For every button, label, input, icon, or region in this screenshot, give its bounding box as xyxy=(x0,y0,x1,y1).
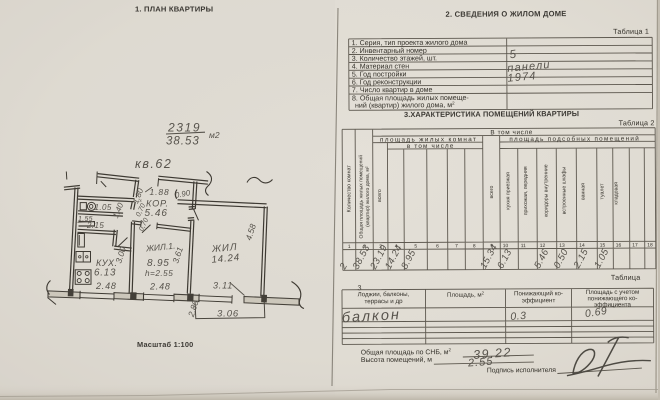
svg-text:8.95: 8.95 xyxy=(147,258,170,269)
svg-text:террасы и др: террасы и др xyxy=(364,298,403,305)
svg-text:16: 16 xyxy=(616,243,622,249)
svg-text:Общая площадь жилых помещений: Общая площадь жилых помещений xyxy=(357,155,364,239)
svg-text:3.11: 3.11 xyxy=(213,281,233,291)
svg-text:2. СВЕДЕНИЯ О ЖИЛОМ ДОМЕ: 2. СВЕДЕНИЯ О ЖИЛОМ ДОМЕ xyxy=(446,9,567,19)
svg-text:2.48: 2.48 xyxy=(149,282,171,292)
svg-text:(квартир) жилого дома, м²: (квартир) жилого дома, м² xyxy=(365,166,371,227)
svg-text:2.48: 2.48 xyxy=(95,281,117,291)
svg-text:кухня приезжая: кухня приезжая xyxy=(505,172,511,210)
svg-text:кв.62: кв.62 xyxy=(135,157,172,171)
svg-text:балкон: балкон xyxy=(341,307,401,326)
svg-text:Высота помещений, м: Высота помещений, м xyxy=(361,356,433,364)
svg-text:эффициент: эффициент xyxy=(522,297,556,304)
svg-text:6.13: 6.13 xyxy=(94,268,116,279)
svg-text:0.3: 0.3 xyxy=(510,310,527,323)
svg-text:прихожая, передняя: прихожая, передняя xyxy=(523,166,529,215)
svg-text:Общая площадь по СНБ, м2: Общая площадь по СНБ, м2 xyxy=(361,347,452,356)
svg-text:2.15: 2.15 xyxy=(86,221,104,230)
svg-text:18: 18 xyxy=(647,242,653,248)
svg-text:Площадь, м2: Площадь, м2 xyxy=(447,290,485,298)
svg-text:1. ПЛАН КВАРТИРЫ: 1. ПЛАН КВАРТИРЫ xyxy=(135,5,213,14)
svg-text:м2: м2 xyxy=(209,130,220,140)
svg-text:5.46: 5.46 xyxy=(145,208,168,219)
svg-text:в том числе: в том числе xyxy=(407,143,455,150)
svg-text:Таблица 1: Таблица 1 xyxy=(613,27,649,36)
svg-text:КОР.: КОР. xyxy=(146,199,169,209)
svg-text:встроенные шкафы: встроенные шкафы xyxy=(561,167,567,215)
svg-text:Масштаб 1:100: Масштаб 1:100 xyxy=(137,340,193,349)
svg-text:5: 5 xyxy=(414,244,417,250)
svg-text:1.05: 1.05 xyxy=(95,203,112,212)
svg-text:ванная: ванная xyxy=(580,183,586,200)
svg-text:7: 7 xyxy=(455,243,458,249)
svg-text:h=2.55: h=2.55 xyxy=(145,269,173,278)
svg-text:кладовая: кладовая xyxy=(613,182,619,205)
svg-text:Таблица 2: Таблица 2 xyxy=(619,118,655,127)
svg-text:8: 8 xyxy=(473,243,476,249)
svg-text:Количество комнат: Количество комнат xyxy=(346,165,352,213)
svg-text:38.53: 38.53 xyxy=(166,136,200,148)
svg-text:6: 6 xyxy=(436,244,439,250)
svg-text:17: 17 xyxy=(632,242,638,248)
svg-text:1: 1 xyxy=(348,244,351,250)
svg-text:туалет: туалет xyxy=(599,183,605,200)
svg-text:Подпись исполнителя: Подпись исполнителя xyxy=(487,367,556,374)
svg-text:всего: всего xyxy=(377,189,383,202)
svg-text:11: 11 xyxy=(521,243,526,249)
svg-text:1.88: 1.88 xyxy=(150,187,170,197)
svg-text:коридоры внутренние: коридоры внутренние xyxy=(543,164,549,217)
svg-text:всего: всего xyxy=(489,185,495,198)
svg-text:ний (квартир) жилого дома, м2: ний (квартир) жилого дома, м2 xyxy=(355,101,455,110)
svg-text:площадь подсобных помещений: площадь подсобных помещений xyxy=(509,134,640,143)
svg-text:3.ХАРАКТЕРИСТИКА ПОМЕЩЕНИЙ КВА: 3.ХАРАКТЕРИСТИКА ПОМЕЩЕНИЙ КВАРТИРЫ xyxy=(404,109,579,119)
svg-text:3.06: 3.06 xyxy=(217,309,239,320)
svg-text:7. Число квартир в доме: 7. Число квартир в доме xyxy=(352,86,433,94)
svg-text:Таблица: Таблица xyxy=(611,273,641,282)
